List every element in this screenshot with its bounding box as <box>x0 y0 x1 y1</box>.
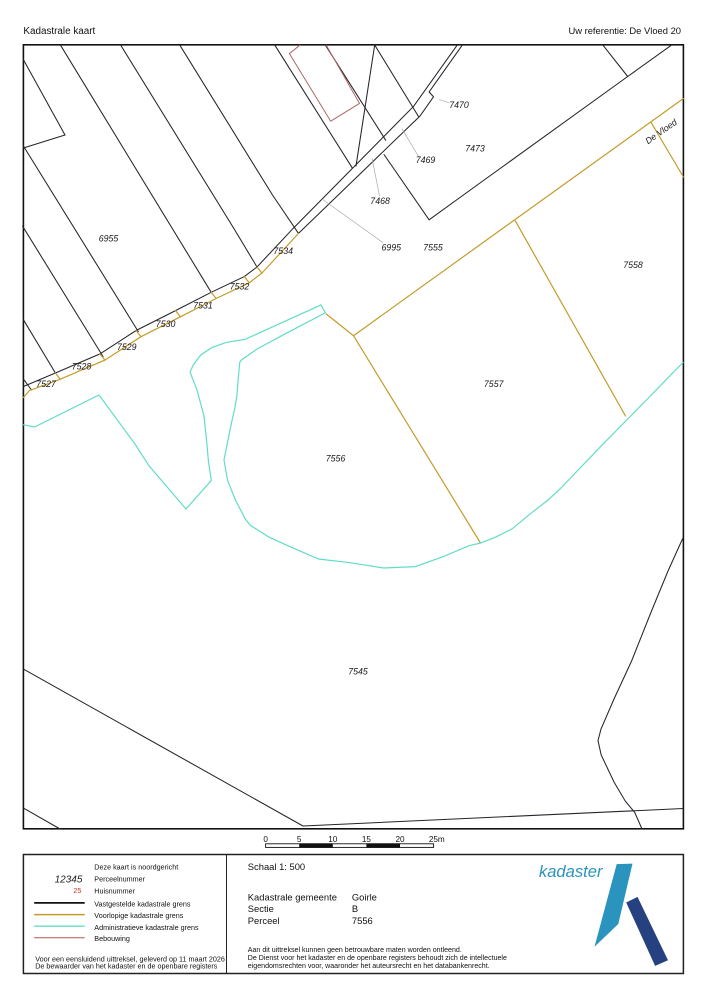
svg-text:Goirle: Goirle <box>352 891 377 902</box>
svg-text:Schaal 1: 500: Schaal 1: 500 <box>248 861 305 872</box>
svg-text:Huisnummer: Huisnummer <box>94 886 135 895</box>
svg-text:25: 25 <box>73 886 81 895</box>
svg-text:De bewaarder van het kadaster: De bewaarder van het kadaster en de open… <box>35 962 218 971</box>
svg-text:5: 5 <box>297 835 302 844</box>
svg-text:Voorlopige kadastrale grens: Voorlopige kadastrale grens <box>94 911 184 920</box>
svg-text:25m: 25m <box>429 835 445 844</box>
svg-text:15: 15 <box>362 835 372 844</box>
svg-text:6955: 6955 <box>99 234 119 244</box>
svg-text:7470: 7470 <box>449 100 469 110</box>
svg-text:7528: 7528 <box>72 362 92 372</box>
svg-text:Perceel: Perceel <box>248 915 280 926</box>
svg-text:7530: 7530 <box>156 319 176 329</box>
svg-text:Sectie: Sectie <box>248 903 274 914</box>
svg-text:kadaster: kadaster <box>539 862 604 881</box>
svg-text:7473: 7473 <box>465 143 485 153</box>
svg-text:Kadastrale kaart: Kadastrale kaart <box>23 26 95 37</box>
svg-text:Bebouwing: Bebouwing <box>94 934 130 943</box>
svg-text:7558: 7558 <box>623 260 643 270</box>
svg-text:De Dienst voor het kadaster en: De Dienst voor het kadaster en de openba… <box>248 955 507 962</box>
svg-text:Kadastrale gemeente: Kadastrale gemeente <box>248 891 337 902</box>
svg-text:eigendomsrechten voor, waarond: eigendomsrechten voor, waaronder het aut… <box>248 963 490 970</box>
svg-text:7529: 7529 <box>117 342 137 352</box>
svg-text:Aan dit uittreksel kunnen geen: Aan dit uittreksel kunnen geen betrouwba… <box>248 947 462 954</box>
svg-text:Perceelnummer: Perceelnummer <box>94 874 145 883</box>
svg-text:Uw referentie: De Vloed 20: Uw referentie: De Vloed 20 <box>568 25 681 36</box>
svg-text:De Vloed: De Vloed <box>643 116 679 146</box>
svg-text:Deze kaart is noordgericht: Deze kaart is noordgericht <box>94 862 178 871</box>
svg-text:7556: 7556 <box>352 915 373 926</box>
svg-text:Vastgestelde kadastrale grens: Vastgestelde kadastrale grens <box>94 900 191 909</box>
svg-text:7557: 7557 <box>484 379 505 389</box>
svg-text:0: 0 <box>263 835 268 844</box>
svg-text:6995: 6995 <box>382 242 402 252</box>
svg-text:20: 20 <box>395 835 405 844</box>
svg-text:Administratieve kadastrale gre: Administratieve kadastrale grens <box>94 923 199 932</box>
svg-text:7555: 7555 <box>423 242 443 252</box>
svg-text:7468: 7468 <box>370 196 390 206</box>
svg-text:7545: 7545 <box>348 667 368 677</box>
svg-text:7469: 7469 <box>416 155 436 165</box>
svg-text:7531: 7531 <box>193 301 213 311</box>
svg-text:7534: 7534 <box>273 246 293 256</box>
svg-text:B: B <box>352 903 358 914</box>
svg-text:7556: 7556 <box>326 453 346 463</box>
svg-text:7527: 7527 <box>36 379 57 389</box>
svg-text:12345: 12345 <box>55 874 83 885</box>
svg-text:10: 10 <box>328 835 338 844</box>
svg-text:7532: 7532 <box>230 282 250 292</box>
